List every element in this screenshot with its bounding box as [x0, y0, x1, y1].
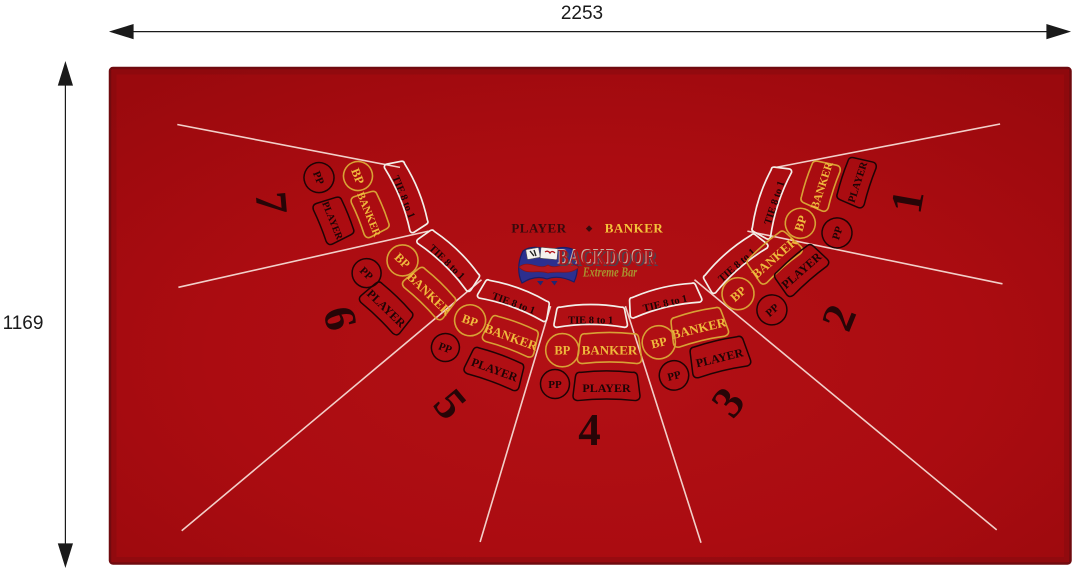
- svg-text:4: 4: [578, 405, 601, 455]
- svg-text:7: 7: [246, 190, 298, 217]
- svg-text:BP: BP: [554, 344, 570, 358]
- svg-text:1169: 1169: [3, 313, 44, 334]
- svg-text:TIE 8 to 1: TIE 8 to 1: [568, 316, 613, 327]
- svg-text:Extreme Bar: Extreme Bar: [582, 264, 637, 280]
- svg-text:PP: PP: [548, 379, 562, 391]
- svg-text:BANKER: BANKER: [605, 221, 664, 236]
- svg-text:PLAYER: PLAYER: [582, 381, 631, 395]
- svg-text:2253: 2253: [561, 3, 603, 24]
- svg-text:BANKER: BANKER: [582, 343, 638, 358]
- svg-text:PLAYER: PLAYER: [511, 221, 566, 236]
